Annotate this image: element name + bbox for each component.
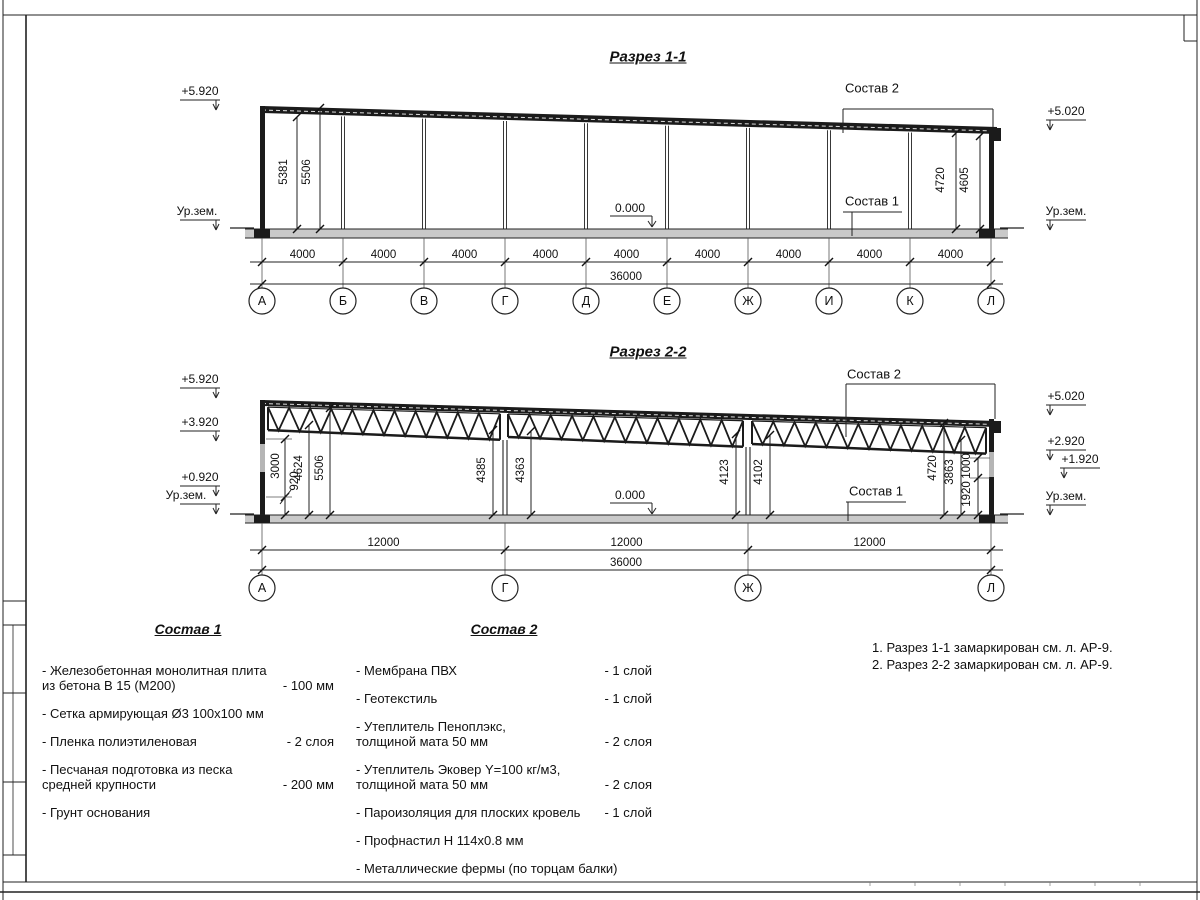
elevation-mark-label: Ур.зем.: [1046, 204, 1087, 218]
composition-item-name: - Пленка полиэтиленовая: [42, 734, 197, 749]
axis-label: В: [420, 294, 428, 308]
elevation-mark-label: +5.020: [1047, 104, 1084, 118]
dim-label: 1920: [961, 481, 973, 507]
composition-item: - Утеплитель Пеноплэкс, толщиной мата 50…: [356, 719, 652, 749]
composition-item: - Утеплитель Эковер Y=100 кг/м3, толщино…: [356, 762, 652, 792]
composition-1-items: - Железобетонная монолитная плита из бет…: [42, 663, 334, 820]
axis-label: Г: [502, 294, 509, 308]
span-dim-label: 4000: [290, 249, 316, 261]
axis-label: Л: [987, 294, 995, 308]
zero-level-label: 0.000: [615, 201, 645, 215]
dim-label: 3000: [270, 453, 282, 479]
composition-item-qty: - 100 мм: [275, 678, 334, 693]
composition-item-qty: - 1 слой: [596, 805, 652, 820]
composition-callout: Состав 1: [849, 484, 903, 499]
composition-callout: Состав 1: [845, 194, 899, 209]
axis-label: К: [906, 294, 913, 308]
total-dim-label: 36000: [610, 557, 642, 569]
dim-label: 4385: [476, 457, 488, 483]
axis-label: Е: [663, 294, 671, 308]
dim-label: 4123: [719, 459, 731, 485]
composition-item-qty: - 2 слоя: [597, 734, 652, 749]
composition-item-qty: - 1 слой: [596, 691, 652, 706]
span-dim-label: 4000: [938, 249, 964, 261]
composition-item: - Песчаная подготовка из песка средней к…: [42, 762, 334, 792]
axis-label: И: [825, 294, 834, 308]
dim-label: 5506: [301, 159, 313, 185]
composition-item-name: - Утеплитель Пеноплэкс, толщиной мата 50…: [356, 719, 506, 749]
dim-label: 4605: [959, 167, 971, 193]
span-dim-label: 12000: [368, 537, 400, 549]
dim-label: 5381: [278, 159, 290, 185]
span-dim-label: 4000: [614, 249, 640, 261]
composition-item-qty: - 2 слоя: [279, 734, 334, 749]
dim-label: 4102: [753, 459, 765, 485]
axis-label: Ж: [742, 294, 754, 308]
span-dim-label: 12000: [611, 537, 643, 549]
composition-item-name: - Сетка армирующая Ø3 100х100 мм: [42, 706, 264, 721]
span-dim-label: 12000: [854, 537, 886, 549]
elevation-mark-label: +5.020: [1047, 389, 1084, 403]
dim-label: 4720: [927, 455, 939, 481]
elevation-mark-label: +3.920: [181, 415, 218, 429]
composition-item: - Мембрана ПВХ- 1 слой: [356, 663, 652, 678]
span-dim-label: 4000: [371, 249, 397, 261]
composition-item-name: - Утеплитель Эковер Y=100 кг/м3, толщино…: [356, 762, 560, 792]
section-1-title: Разрез 1-1: [609, 49, 686, 66]
dim-label: 4363: [515, 457, 527, 483]
total-dim-label: 36000: [610, 271, 642, 283]
sheet-notes: 1. Разрез 1-1 замаркирован см. л. АР-9.2…: [872, 639, 1113, 673]
composition-item-name: - Грунт основания: [42, 805, 150, 820]
composition-item: - Профнастил Н 114х0.8 мм: [356, 833, 652, 848]
dim-label: 4624: [293, 455, 305, 481]
composition-item: - Сетка армирующая Ø3 100х100 мм: [42, 706, 334, 721]
composition-item-name: - Профнастил Н 114х0.8 мм: [356, 833, 524, 848]
zero-level-label: 0.000: [615, 488, 645, 502]
sheet-note-line: 2. Разрез 2-2 замаркирован см. л. АР-9.: [872, 656, 1113, 673]
span-dim-label: 4000: [857, 249, 883, 261]
axis-label: Г: [502, 581, 509, 595]
composition-1-block: Состав 1 - Железобетонная монолитная пли…: [42, 622, 334, 833]
span-dim-label: 4000: [452, 249, 478, 261]
composition-item: - Геотекстиль- 1 слой: [356, 691, 652, 706]
axis-label: Л: [987, 581, 995, 595]
elevation-mark-label: +5.920: [181, 372, 218, 386]
axis-label: Б: [339, 294, 347, 308]
elevation-mark-label: +1.920: [1061, 452, 1098, 466]
composition-item-name: - Геотекстиль: [356, 691, 437, 706]
composition-callout: Состав 2: [845, 81, 899, 96]
span-dim-label: 4000: [695, 249, 721, 261]
composition-item: - Пленка полиэтиленовая- 2 слоя: [42, 734, 334, 749]
axis-label: А: [258, 294, 266, 308]
section-2-title: Разрез 2-2: [609, 344, 686, 361]
drawing-sheet: 5381550647204605400040004000400040004000…: [0, 0, 1200, 900]
composition-item: - Пароизоляция для плоских кровель- 1 сл…: [356, 805, 652, 820]
composition-item: - Металлические фермы (по торцам балки): [356, 861, 652, 876]
composition-item-qty: - 200 мм: [275, 777, 334, 792]
sheet-note-line: 1. Разрез 1-1 замаркирован см. л. АР-9.: [872, 639, 1113, 656]
span-dim-label: 4000: [533, 249, 559, 261]
dim-label: 3863: [944, 459, 956, 485]
composition-item: - Железобетонная монолитная плита из бет…: [42, 663, 334, 693]
composition-2-title: Состав 2: [356, 622, 652, 637]
axis-label: А: [258, 581, 266, 595]
composition-item-name: - Железобетонная монолитная плита из бет…: [42, 663, 267, 693]
axis-label: Ж: [742, 581, 754, 595]
elevation-mark-label: Ур.зем.: [1046, 489, 1087, 503]
composition-item-name: - Песчаная подготовка из песка средней к…: [42, 762, 232, 792]
composition-item-qty: - 2 слоя: [597, 777, 652, 792]
elevation-mark-label: Ур.зем.: [177, 204, 218, 218]
composition-item-qty: - 1 слой: [596, 663, 652, 678]
composition-item: - Грунт основания: [42, 805, 334, 820]
composition-2-items: - Мембрана ПВХ- 1 слой- Геотекстиль- 1 с…: [356, 663, 652, 876]
elevation-mark-label: +2.920: [1047, 434, 1084, 448]
elevation-mark-label: +0.920: [181, 470, 218, 484]
elevation-mark-label: +5.920: [181, 84, 218, 98]
composition-item-name: - Мембрана ПВХ: [356, 663, 457, 678]
dim-label: 5506: [314, 455, 326, 481]
dim-label: 1000: [961, 453, 973, 479]
span-dim-label: 4000: [776, 249, 802, 261]
composition-2-block: Состав 2 - Мембрана ПВХ- 1 слой- Геотекс…: [356, 622, 652, 889]
composition-item-name: - Пароизоляция для плоских кровель: [356, 805, 580, 820]
axis-label: Д: [582, 294, 590, 308]
elevation-mark-label: Ур.зем.: [166, 488, 207, 502]
dim-label: 4720: [935, 167, 947, 193]
composition-item-name: - Металлические фермы (по торцам балки): [356, 861, 617, 876]
composition-callout: Состав 2: [847, 367, 901, 382]
composition-1-title: Состав 1: [42, 622, 334, 637]
